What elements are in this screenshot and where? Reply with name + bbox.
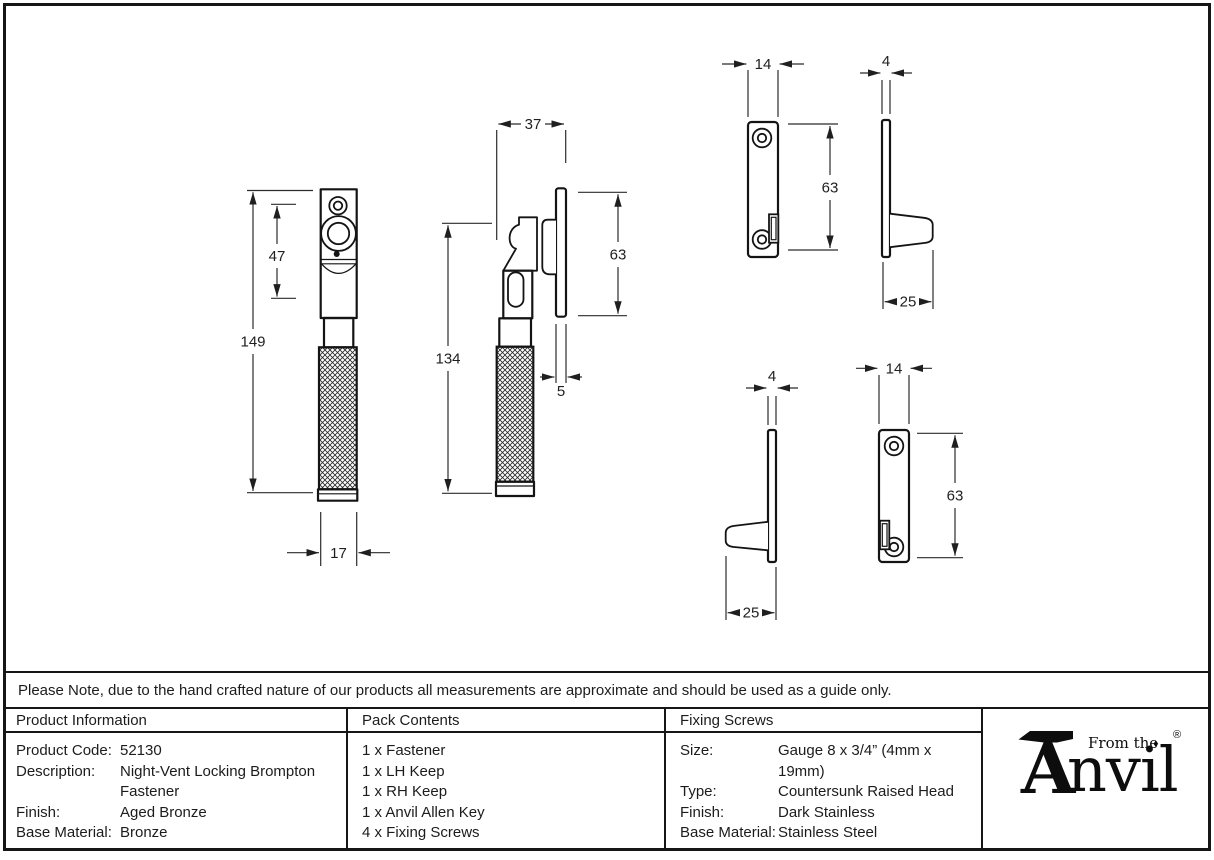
row-label: Type: [680,782,778,803]
row-value: Dark Stainless [778,803,975,824]
note-row: Please Note, due to the hand crafted nat… [6,671,1208,707]
row-value: Countersunk Raised Head [778,782,975,803]
pack-item: 1 x LH Keep [362,762,658,783]
fixing-screws-header: Fixing Screws [666,709,981,733]
row-label: Product Code: [16,741,120,762]
table-row: Base Material: Stainless Steel [680,823,975,844]
row-value: Aged Bronze [120,803,340,824]
technical-drawing-area [6,6,1208,671]
row-value: 52130 [120,741,340,762]
table-row: Product Code: 52130 [16,741,340,762]
pack-contents-header: Pack Contents [348,709,664,733]
brand-cell: A nvil From the ♦ ® [981,709,1208,848]
row-value: Night-Vent Locking Brompton Fastener [120,762,340,803]
row-label: Finish: [16,803,120,824]
table-row: Finish: Aged Bronze [16,803,340,824]
table-row: Size: Gauge 8 x 3/4” (4mm x 19mm) [680,741,975,782]
pack-item: 1 x Fastener [362,741,658,762]
pack-item: 1 x Anvil Allen Key [362,803,658,824]
row-value: Gauge 8 x 3/4” (4mm x 19mm) [778,741,975,782]
product-datasheet: Please Note, due to the hand crafted nat… [0,0,1214,860]
logo-tagline: From the [1088,734,1158,752]
pack-item: 1 x RH Keep [362,782,658,803]
row-value: Bronze [120,823,340,844]
row-label: Base Material: [680,823,778,844]
row-label: Description: [16,762,120,803]
pack-contents-column: Pack Contents 1 x Fastener 1 x LH Keep 1… [346,709,664,848]
fixing-screws-column: Fixing Screws Size: Gauge 8 x 3/4” (4mm … [664,709,981,848]
registered-mark: ® [1173,729,1181,741]
row-label: Base Material: [16,823,120,844]
note-text: Please Note, due to the hand crafted nat… [18,682,892,699]
row-label: Size: [680,741,778,782]
table-row: Finish: Dark Stainless [680,803,975,824]
row-value: Stainless Steel [778,823,975,844]
product-information-header: Product Information [6,709,346,733]
product-information-column: Product Information Product Code: 52130 … [6,709,346,848]
anvil-logo: A nvil From the ♦ ® [1021,721,1201,793]
row-label: Finish: [680,803,778,824]
table-row: Type: Countersunk Raised Head [680,782,975,803]
sheet-frame: Please Note, due to the hand crafted nat… [3,3,1211,851]
table-row: Description: Night-Vent Locking Brompton… [16,762,340,803]
table-row: Base Material: Bronze [16,823,340,844]
spec-table: Product Information Product Code: 52130 … [6,707,1208,848]
pack-item: 4 x Fixing Screws [362,823,658,844]
diamond-icon: ♦ [1153,738,1159,750]
